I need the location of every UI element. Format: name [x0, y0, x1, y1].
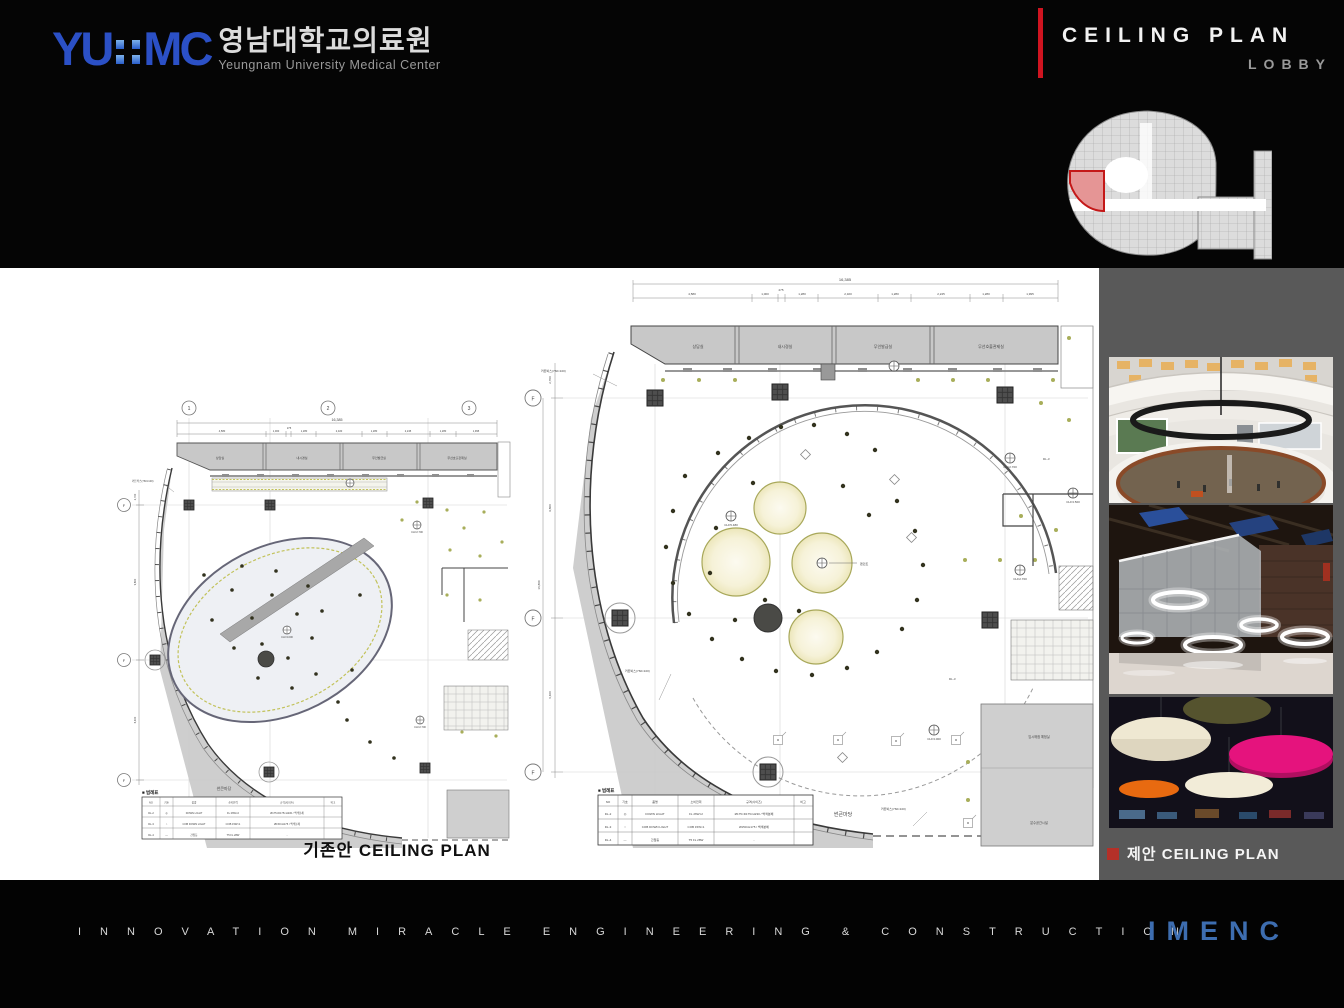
svg-text:커튼박스(760×100): 커튼박스(760×100) [132, 479, 154, 483]
footer-brand-imenc: IMENC [1148, 916, 1290, 947]
svg-text:DL-3: DL-3 [949, 677, 956, 681]
svg-text:3: 3 [468, 406, 471, 412]
svg-text:NO: NO [606, 800, 611, 804]
footer-tagline: INNOVATION MIRACLE ENGINEERING & CONSTRU… [78, 926, 1198, 938]
svg-text:1,280: 1,280 [798, 292, 806, 296]
svg-text:Ø175×D175×H230 / 백색분체: Ø175×D175×H230 / 백색분체 [735, 811, 774, 816]
logo-colon-icon [116, 40, 124, 64]
svg-text:1,000: 1,000 [273, 429, 280, 433]
svg-text:팬던트: 팬던트 [860, 561, 869, 566]
svg-text:1,000: 1,000 [761, 292, 769, 296]
svg-text:6,400: 6,400 [548, 691, 552, 699]
proposal-caption-text: 제안 CEILING PLAN [1127, 843, 1280, 864]
logo-colon-icon [132, 40, 140, 64]
svg-text:T5 FL 28W: T5 FL 28W [227, 833, 240, 837]
svg-text:간접등: 간접등 [651, 837, 660, 842]
speaker-symbols [801, 450, 917, 763]
svg-text:기호: 기호 [164, 801, 169, 805]
svg-text:◎: ◎ [624, 812, 627, 816]
proposal-panel: 제안 CEILING PLAN [1099, 268, 1344, 883]
svg-text:9,800: 9,800 [548, 504, 552, 512]
svg-text:9,800: 9,800 [133, 578, 137, 585]
svg-text:4,580: 4,580 [219, 429, 226, 433]
svg-text:DL-4: DL-4 [605, 838, 612, 842]
svg-text:Ø150×H175 / 백색분체: Ø150×H175 / 백색분체 [739, 824, 769, 829]
exterior-area [573, 352, 873, 848]
light-fixture-symbols: CH=5.480 CH=2.700 CH=3.500 CH=2.700 CH=3… [724, 361, 1080, 741]
svg-text:커튼박스(760×100): 커튼박스(760×100) [625, 668, 650, 673]
existing-ceiling-plan-drawing: 1 2 3 16,385 4,580 1,000 275 1,280 2,320… [112, 390, 512, 850]
svg-text:DL-3: DL-3 [1043, 457, 1050, 461]
yumc-logo: YU MC 영남대학교의료원 Yeungnam University Medic… [52, 26, 441, 72]
logo-mark: YU MC [52, 26, 210, 72]
svg-text:DL-4: DL-4 [148, 833, 154, 837]
page-subtitle: LOBBY [1062, 56, 1332, 72]
caption-bullet-icon [1107, 848, 1119, 860]
svg-text:DOWN LIGHT: DOWN LIGHT [186, 811, 203, 815]
linear-cove-light [212, 478, 387, 491]
svg-text:2,320: 2,320 [844, 292, 852, 296]
svg-text:F: F [123, 658, 126, 663]
round-ceiling-lights [702, 482, 852, 664]
svg-text:F: F [531, 397, 534, 403]
svg-text:기호: 기호 [622, 799, 628, 804]
svg-text:COB DOWN LIGHT: COB DOWN LIGHT [642, 825, 669, 829]
round-fixture [754, 604, 782, 632]
svg-text:■ 범례표: ■ 범례표 [598, 787, 614, 794]
east-rooms [1003, 494, 1093, 566]
svg-text:275: 275 [778, 288, 783, 292]
svg-text:-: - [754, 838, 755, 842]
svg-text:소비전력: 소비전력 [690, 799, 701, 804]
page-title: CEILING PLAN [1062, 24, 1338, 48]
svg-text:규격(사이즈): 규격(사이즈) [280, 801, 294, 805]
svg-text:DL-2: DL-2 [605, 812, 612, 816]
svg-text:1,995: 1,995 [1026, 292, 1034, 296]
svg-text:16,385: 16,385 [332, 418, 343, 422]
svg-text:CH=3.000: CH=3.000 [927, 737, 941, 741]
svg-text:275: 275 [287, 426, 292, 430]
svg-text:무인발급실: 무인발급실 [874, 343, 893, 349]
svg-text:1,995: 1,995 [473, 429, 480, 433]
svg-text:2,320: 2,320 [336, 429, 343, 433]
svg-text:2,700: 2,700 [548, 376, 552, 384]
svg-text:NO: NO [149, 801, 153, 805]
footer: INNOVATION MIRACLE ENGINEERING & CONSTRU… [0, 880, 1344, 1008]
logo-english-name: Yeungnam University Medical Center [218, 58, 440, 72]
svg-text:T5 FL 28W: T5 FL 28W [689, 838, 704, 842]
svg-text:품명: 품명 [652, 799, 658, 804]
logo-korean-name: 영남대학교의료원 [218, 26, 440, 56]
svg-text:CH=2.700: CH=2.700 [411, 530, 423, 534]
svg-text:1,280: 1,280 [440, 429, 447, 433]
svg-text:무인발급실: 무인발급실 [372, 455, 386, 460]
logo-yu: YU [52, 26, 111, 72]
svg-text:2: 2 [327, 406, 330, 412]
svg-text:소비전력: 소비전력 [228, 801, 238, 805]
svg-text:COB 15W×1: COB 15W×1 [688, 825, 705, 829]
svg-text:CH=2.700: CH=2.700 [1003, 465, 1017, 469]
round-fixture [258, 651, 274, 667]
proposed-ceiling-plan-drawing: 16,385 4,580 1,000 275 1,280 2,320 1,280… [513, 268, 1098, 873]
svg-text:내시경실: 내시경실 [778, 343, 793, 349]
grid-bubbles-rows: F F F [118, 499, 131, 787]
svg-text:FL 26W×2: FL 26W×2 [689, 812, 703, 816]
logo-mc: MC [143, 26, 210, 72]
svg-text:비고: 비고 [800, 799, 806, 804]
svg-text:Ø150×H175 / 백색분체: Ø150×H175 / 백색분체 [274, 822, 300, 826]
svg-text:DL-2: DL-2 [148, 811, 154, 815]
svg-text:4,580: 4,580 [688, 292, 696, 296]
svg-text:—: — [165, 834, 168, 837]
svg-text:FL 26W×2: FL 26W×2 [227, 811, 239, 815]
svg-text:2,245: 2,245 [937, 292, 945, 296]
keymap-floor-plan [1048, 103, 1272, 263]
svg-text:커튼박스(760×100): 커튼박스(760×100) [881, 806, 906, 811]
svg-text:16,800: 16,800 [537, 580, 541, 590]
svg-text:1,280: 1,280 [982, 292, 990, 296]
svg-text:DL-3: DL-3 [605, 825, 612, 829]
svg-text:간접등: 간접등 [190, 833, 198, 837]
svg-text:규격(사이즈): 규격(사이즈) [746, 799, 762, 804]
svg-text:16,385: 16,385 [839, 277, 852, 282]
svg-text:CH=3.000: CH=3.000 [281, 635, 293, 639]
svg-text:분수공간시설: 분수공간시설 [1030, 820, 1048, 825]
svg-text:○: ○ [624, 825, 626, 829]
southeast-rooms: 임시매점 예정실 분수공간시설 [981, 704, 1093, 846]
svg-text:■ 범례표: ■ 범례표 [142, 789, 158, 796]
dimension-row [177, 420, 497, 437]
svg-text:썬큰마당: 썬큰마당 [217, 785, 232, 791]
svg-text:DL-3: DL-3 [148, 822, 154, 826]
title-accent-bar [1038, 8, 1043, 78]
east-rooms [442, 568, 508, 622]
existing-plan-caption: 기존안 CEILING PLAN [282, 836, 512, 861]
svg-text:CH=2.700: CH=2.700 [1013, 577, 1027, 581]
svg-text:2,245: 2,245 [405, 429, 412, 433]
svg-text:DOWN LIGHT: DOWN LIGHT [645, 812, 664, 816]
svg-text:품명: 품명 [192, 801, 197, 805]
svg-text:무선호출관제실: 무선호출관제실 [978, 343, 1004, 349]
svg-text:상담실: 상담실 [216, 455, 225, 460]
header: YU MC 영남대학교의료원 Yeungnam University Medic… [0, 0, 1344, 268]
svg-text:COB DOWN LIGHT: COB DOWN LIGHT [183, 822, 206, 826]
svg-text:F: F [123, 503, 126, 508]
proposal-caption: 제안 CEILING PLAN [1107, 843, 1280, 864]
svg-text:CH=3.500: CH=3.500 [1066, 500, 1080, 504]
svg-text:무선호출관제실: 무선호출관제실 [447, 455, 467, 460]
svg-text:내시경실: 내시경실 [296, 455, 307, 460]
svg-text:임시매점 예정실: 임시매점 예정실 [1028, 734, 1049, 739]
svg-text:커튼박스(760×100): 커튼박스(760×100) [541, 368, 566, 373]
legend-table: ■ 범례표 NO 기호 품명 소비전력 규격(사이즈) 비고 DL-2 ◎ DO… [598, 787, 813, 845]
svg-text:상담실: 상담실 [692, 343, 703, 349]
svg-text:F: F [531, 617, 534, 623]
svg-text:Ø175×D175×H230 / 백색분체: Ø175×D175×H230 / 백색분체 [270, 811, 304, 815]
svg-text:CH=5.480: CH=5.480 [724, 523, 738, 527]
photo-ring-pendant-lights [1109, 505, 1333, 694]
photo-color-disc-ceiling [1109, 697, 1333, 828]
grid-bubbles-cols: 1 2 3 [182, 401, 476, 415]
svg-text:1,280: 1,280 [371, 429, 378, 433]
svg-text:1,280: 1,280 [301, 429, 308, 433]
svg-text:1: 1 [188, 406, 191, 412]
svg-text:CH=2.700: CH=2.700 [414, 725, 426, 729]
svg-text:비고: 비고 [331, 801, 336, 805]
svg-text:F: F [531, 771, 534, 777]
svg-text:썬큰마당: 썬큰마당 [834, 811, 853, 818]
svg-text:—: — [624, 838, 627, 842]
svg-text:2,700: 2,700 [133, 493, 137, 500]
svg-text:1,280: 1,280 [891, 292, 899, 296]
svg-text:F: F [123, 778, 126, 783]
svg-text:6,400: 6,400 [133, 716, 137, 723]
svg-text:COB 15W×1: COB 15W×1 [226, 822, 241, 826]
photo-atrium-round-chandelier [1109, 357, 1333, 503]
